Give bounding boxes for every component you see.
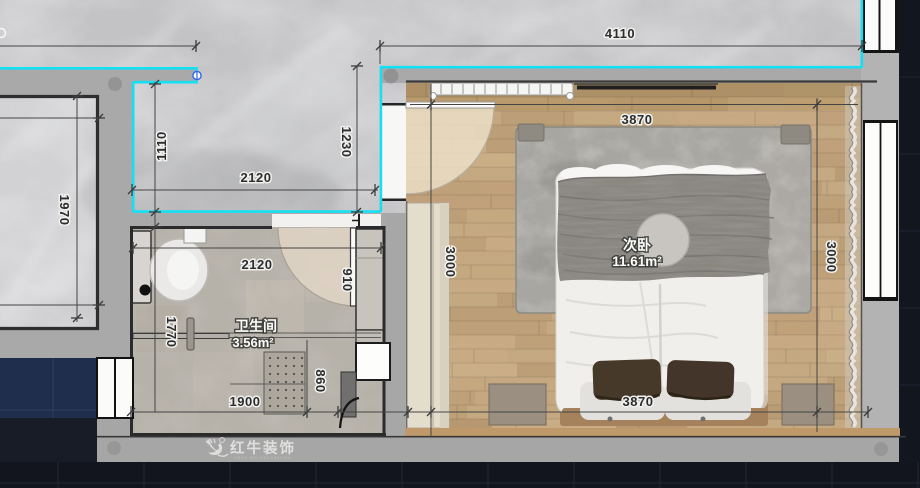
svg-text:1770: 1770: [164, 317, 179, 348]
svg-text:2120: 2120: [241, 170, 272, 185]
svg-text:3870: 3870: [623, 394, 654, 409]
svg-text:1970: 1970: [57, 195, 72, 226]
svg-text:11.61m²: 11.61m²: [612, 254, 662, 269]
svg-text:红牛装饰: 红牛装饰: [230, 439, 296, 457]
svg-text:HONG NIU DECORATION: HONG NIU DECORATION: [234, 456, 291, 460]
svg-text:1110: 1110: [154, 131, 169, 161]
svg-text:卫生间: 卫生间: [235, 318, 277, 334]
svg-text:860: 860: [313, 369, 328, 392]
svg-text:3.56m²: 3.56m²: [232, 335, 274, 350]
svg-text:3870: 3870: [622, 112, 653, 127]
svg-text:4110: 4110: [605, 26, 635, 41]
svg-text:次卧: 次卧: [623, 237, 651, 253]
svg-text:1230: 1230: [339, 127, 354, 158]
svg-text:3000: 3000: [443, 247, 458, 278]
svg-text:3000: 3000: [824, 242, 839, 273]
svg-text:910: 910: [340, 268, 355, 291]
svg-text:2120: 2120: [242, 257, 273, 272]
svg-text:1900: 1900: [230, 394, 261, 409]
